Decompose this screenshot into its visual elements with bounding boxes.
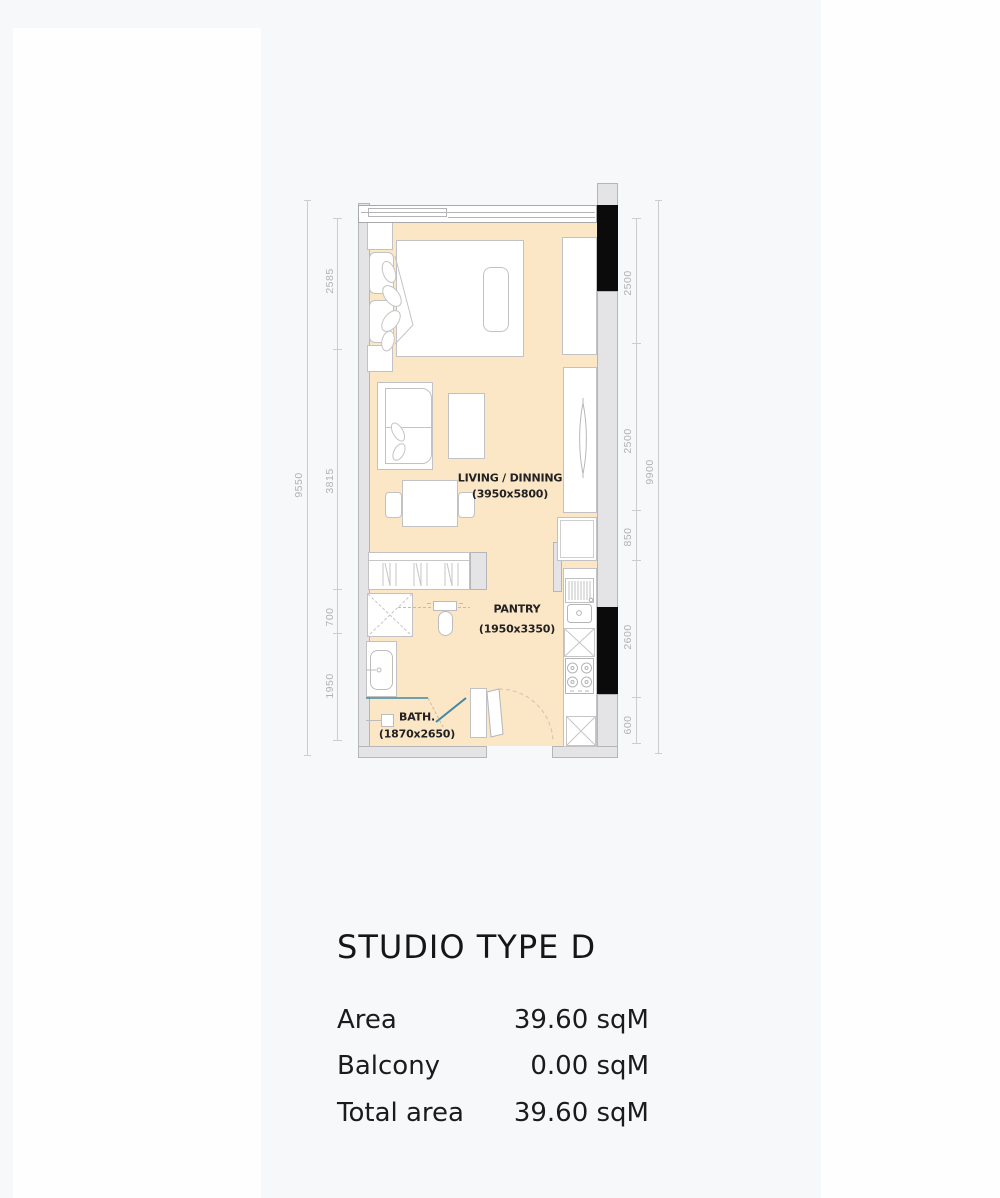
dim-right-2: 2500 xyxy=(622,428,634,453)
wall-stub-wardrobe xyxy=(470,552,487,590)
column-top-right xyxy=(597,205,618,292)
pantry-size-label: (1950x3350) xyxy=(479,623,555,636)
total-area-row: Total area 39.60 sqM xyxy=(337,1098,649,1132)
dim-right-total: 9900 xyxy=(644,459,656,484)
area-row: Area 39.60 sqM xyxy=(337,1005,649,1039)
wardrobe xyxy=(368,552,470,590)
dim-left-3: 700 xyxy=(324,607,336,626)
nightstand-bottom xyxy=(367,345,393,372)
wall-right-mid xyxy=(597,291,618,608)
bath-door-jamb xyxy=(470,688,487,738)
wall-stub-top-right xyxy=(597,183,618,207)
background-panel-right xyxy=(821,0,1000,1198)
coffee-table xyxy=(448,393,485,459)
dim-right-4: 2600 xyxy=(622,624,634,649)
balcony-row: Balcony 0.00 sqM xyxy=(337,1051,649,1085)
balcony-value: 0.00 sqM xyxy=(530,1051,649,1081)
pantry-label: PANTRY xyxy=(494,603,541,616)
dim-right-5: 600 xyxy=(622,715,634,734)
living-room-size-label: (3950x5800) xyxy=(472,488,548,501)
fridge xyxy=(557,517,597,561)
dim-left-2: 3815 xyxy=(324,468,336,493)
shower xyxy=(367,593,413,637)
window-icon xyxy=(359,206,597,223)
bath-vanity xyxy=(366,641,397,697)
dim-right-3: 850 xyxy=(622,527,634,546)
dim-left-1: 2585 xyxy=(324,268,336,293)
dining-chair-left xyxy=(385,492,402,518)
background-panel-left xyxy=(13,28,261,1198)
bath-label: BATH. xyxy=(399,711,435,724)
balcony-label: Balcony xyxy=(337,1051,440,1081)
total-area-label: Total area xyxy=(337,1098,464,1128)
column-bottom-right xyxy=(597,607,618,695)
dim-left-total: 9550 xyxy=(293,472,305,497)
bed-pillow-2 xyxy=(369,300,394,343)
dim-right-1: 2500 xyxy=(622,270,634,295)
unit-title: STUDIO TYPE D xyxy=(337,928,596,966)
wall-bottom-right xyxy=(552,746,618,758)
dim-left-4: 1950 xyxy=(324,673,336,698)
tv-cabinet xyxy=(563,367,597,513)
sofa-seat xyxy=(385,388,432,464)
area-label: Area xyxy=(337,1005,397,1035)
wall-bottom-left xyxy=(358,746,487,758)
cabinet-right-top xyxy=(562,237,597,355)
dining-table xyxy=(402,480,458,527)
total-area-value: 39.60 sqM xyxy=(514,1098,649,1128)
area-value: 39.60 sqM xyxy=(514,1005,649,1035)
kitchen-counter xyxy=(563,568,597,747)
living-room-label: LIVING / DINNING xyxy=(458,472,562,485)
bed-pillow-1 xyxy=(369,252,394,294)
bed-duvet xyxy=(483,267,509,332)
nightstand-top xyxy=(367,222,393,250)
bath-size-label: (1870x2650) xyxy=(379,728,455,741)
